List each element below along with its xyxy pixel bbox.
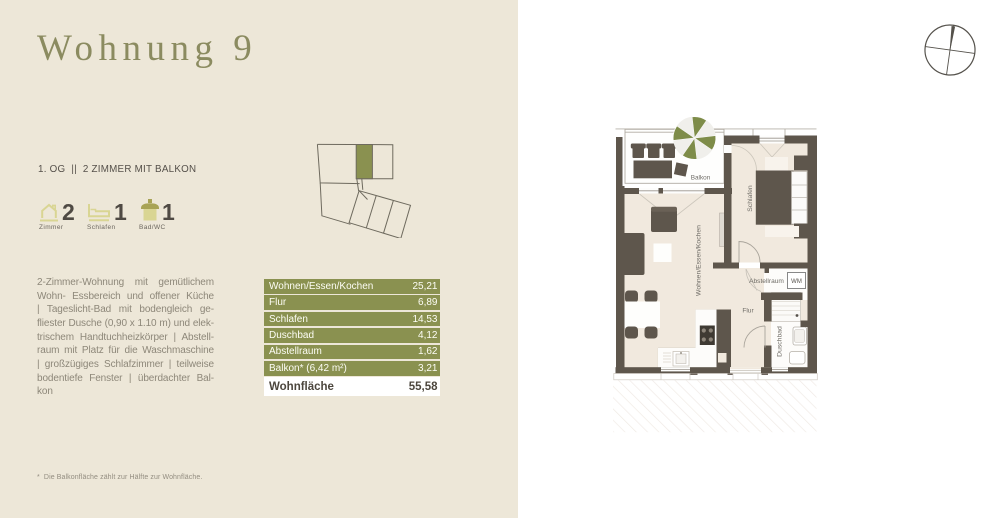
svg-text:Duschbad: Duschbad <box>777 326 784 357</box>
svg-text:Flur: Flur <box>742 308 754 315</box>
svg-text:Wohnen/Essen/Kochen: Wohnen/Essen/Kochen <box>695 225 702 296</box>
svg-text:Schlafen: Schlafen <box>747 185 754 212</box>
svg-text:Balkon: Balkon <box>691 174 711 181</box>
svg-text:Abstellraum: Abstellraum <box>749 278 784 285</box>
svg-text:WM: WM <box>791 279 802 285</box>
